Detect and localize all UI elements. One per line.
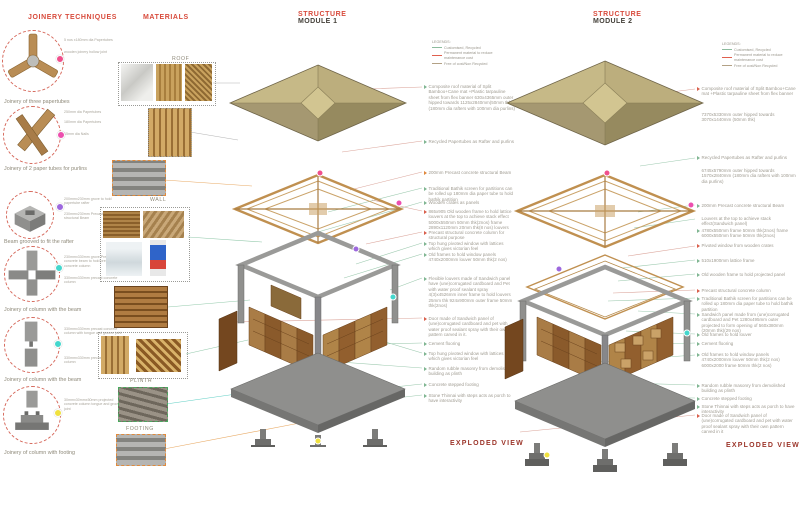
materials-title: MATERIALS: [143, 14, 189, 21]
annotation: Concrete stepped footing: [697, 396, 797, 401]
annotation-marker: [697, 273, 700, 277]
joinery-detail-column-tongue: [4, 317, 60, 373]
annotation-text: Composite roof material of Split Bamboo+…: [702, 86, 798, 97]
joinery-detail-column-beam: [4, 246, 60, 302]
annotation-text: Traditional Bathik screen for partitions…: [702, 296, 798, 312]
legend-entry: Customised, Recycled: [444, 46, 481, 51]
material-swatch-rubble-masonry: [118, 387, 168, 422]
joinery-note: 200mmx230mm grove to hold papertube raft…: [64, 197, 124, 206]
module2-structure-label: STRUCTURE: [593, 11, 642, 18]
module2-header: STRUCTURE MODULE 2: [593, 11, 642, 25]
joinery-note: 250mm dia Papertubes: [64, 110, 124, 114]
two-papertubes-joint-icon: [4, 107, 60, 163]
legend-title: LEGENDS:: [432, 40, 510, 45]
annotation-marker: [424, 342, 427, 346]
legend-entry: Customised, Recycled: [734, 48, 771, 53]
annotation-text: Sandwich panel made from (une)corrugated…: [702, 312, 798, 334]
legend-title: LEGENDS:: [722, 42, 798, 47]
joinery-label: Joinery of column with footing: [4, 450, 129, 456]
annotation-text: Old frames to hold louver: [702, 332, 752, 337]
three-papertubes-joint-icon: [3, 31, 63, 91]
column-tongue-groove-icon: [5, 318, 59, 372]
joinery-detail-column-footing: [3, 386, 61, 444]
legend-entry: Free of cost/Non Recycled: [734, 64, 777, 69]
annotation: Random rubble masonry from demolished bu…: [697, 383, 797, 394]
annotation-marker: [697, 87, 700, 91]
column-footing-joint-icon: [4, 387, 60, 443]
annotation-marker: [424, 277, 427, 281]
joint-dot-teal: [55, 264, 63, 272]
joint-dot-magenta: [57, 131, 65, 139]
annotation-marker: [424, 231, 427, 235]
annotation-marker: [697, 384, 700, 388]
module2-exploded-view-label: EXPLODED VIEW: [726, 442, 800, 449]
joinery-note: 15mm dia Nails: [64, 132, 124, 136]
annotation: Old wooden frame to hold projected panel: [697, 272, 797, 277]
legend-line-red: [432, 55, 442, 56]
annotation: Old frames to hold window panels 4740x20…: [697, 352, 797, 368]
joint-dot-teal: [54, 340, 62, 348]
annotation-marker: [424, 367, 427, 371]
annotation: 200mm Precast concrete structural Beam: [697, 203, 797, 208]
legend-line-green: [432, 47, 442, 48]
annotation-text: Louvers at the top to achieve stack effe…: [702, 216, 798, 227]
annotation-marker: [697, 289, 700, 293]
annotation-marker: [697, 397, 700, 401]
module2-exploded-view-drawing: [497, 55, 712, 475]
material-swatch-wooden-crates: [114, 286, 168, 328]
material-swatch-woven-mat: [103, 211, 140, 238]
annotation-marker: [697, 353, 700, 357]
material-swatch-split-bamboo: [156, 64, 182, 101]
legend-entry: Permanent material to reduce maintenance…: [734, 53, 798, 62]
architecture-sheet: JOINERY TECHNIQUES 5 nos x180mm dia Pape…: [0, 0, 800, 520]
module2-name: MODULE 2: [593, 18, 642, 25]
annotation-marker: [424, 317, 427, 321]
joinery-label: Joinery of column with the beam: [4, 307, 129, 313]
annotation: Composite roof material of Split Bamboo+…: [697, 86, 797, 97]
material-swatch-tarpaulin-roll: [121, 64, 153, 101]
annotation-marker: [424, 210, 427, 214]
material-swatch-batik-fabric: [136, 339, 181, 372]
annotation-marker: [424, 140, 427, 144]
annotation: 4780x550mm frame 50mm thk(2nos) frame 60…: [697, 228, 797, 239]
material-swatch-precast-footing: [116, 434, 166, 466]
module1-name: MODULE 1: [298, 18, 347, 25]
material-swatch-sealant-spray: [150, 240, 166, 276]
annotation-marker: [697, 217, 700, 221]
annotation-marker: [697, 342, 700, 346]
annotation-marker: [697, 414, 700, 418]
joinery-note: wooden joinery hollow joint: [64, 50, 124, 54]
material-swatch-papertube-bundle: [101, 336, 129, 374]
legend-line-green: [722, 49, 732, 50]
annotation-marker: [424, 171, 427, 175]
material-swatch-corrugated-cardboard: [143, 211, 184, 238]
joinery-detail-two-papertubes: [3, 106, 61, 164]
annotation-marker: [697, 156, 700, 160]
annotation-marker: [697, 333, 700, 337]
annotation-marker: [424, 253, 427, 257]
legend-line-tan: [432, 63, 442, 64]
annotation-text: 200mm Precast concrete structural Beam: [702, 203, 785, 208]
annotation: 510x1900mm lattice frame: [697, 258, 797, 263]
annotation-text: 6745x5790mm outer hipped towards 1570x28…: [702, 168, 798, 184]
annotation-text: Concrete stepped footing: [429, 382, 479, 387]
annotation: Louvers at the top to achieve stack effe…: [697, 216, 797, 227]
annotation-marker: [697, 297, 700, 301]
joinery-note: 5 nos x180mm dia Papertubes: [64, 38, 124, 42]
material-swatch-cane-mat: [185, 64, 212, 101]
joint-dot-purple: [56, 203, 64, 211]
annotation: 6745x5790mm outer hipped towards 1570x28…: [697, 168, 797, 184]
material-swatch-pet-bottles: [106, 242, 142, 276]
annotation-text: Door made of Sandwich panel of (une)corr…: [702, 413, 798, 435]
module1-exploded-view-drawing: [213, 57, 413, 447]
joint-dot-pink: [56, 55, 64, 63]
material-swatch-precast-beams: [112, 160, 166, 196]
annotation-marker: [424, 352, 427, 356]
annotation: Old frames to hold louver: [697, 332, 797, 337]
annotation-text: 7370x5330mm outer hipped towards 3070x14…: [702, 112, 798, 123]
annotation: Cement flooring: [697, 341, 797, 346]
annotation-marker: [424, 383, 427, 387]
annotation-marker: [424, 242, 427, 246]
module2-floor-slab: [515, 363, 695, 447]
annotation-marker: [697, 405, 700, 409]
legend-module2: LEGENDS: Customised, Recycled Permanent …: [722, 42, 798, 69]
annotation: Pivoted window from wooden crates: [697, 243, 797, 248]
annotation-text: Precast structural concrete column: [702, 288, 771, 293]
materials-wall-label: WALL: [150, 197, 166, 203]
annotation: Traditional Bathik screen for partitions…: [697, 296, 797, 312]
module2-rafter-frame: [517, 175, 693, 247]
legend-entry: Free of cost/Non Recycled: [444, 62, 487, 67]
grooved-beam-icon: [7, 192, 53, 238]
annotation-marker: [697, 204, 700, 208]
joinery-note: 30mmx30mmx50mm projected concrete column…: [64, 398, 124, 411]
annotation-marker: [697, 244, 700, 248]
module2-roof: [507, 61, 703, 145]
annotation-text: Cement flooring: [702, 341, 734, 346]
annotation-marker: [697, 169, 700, 173]
annotation-text: Random rubble masonry from demolished bu…: [702, 383, 798, 394]
module1-structure-label: STRUCTURE: [298, 11, 347, 18]
annotation-text: Old wooden frame to hold projected panel: [702, 272, 786, 277]
material-swatch-papertubes: [148, 108, 192, 157]
module1-roof: [230, 65, 406, 141]
module1-floor-slab: [231, 353, 405, 433]
module1-drawing-svg: [213, 57, 413, 447]
legend-line-tan: [722, 65, 732, 66]
annotation-marker: [697, 113, 700, 117]
annotation: Sandwich panel made from (une)corrugated…: [697, 312, 797, 334]
annotation: Recycled Papertubes as Rafter and purlin…: [697, 155, 797, 160]
annotation-marker: [424, 85, 427, 89]
annotation: Door made of Sandwich panel of (une)corr…: [697, 413, 797, 435]
annotation-marker: [697, 229, 700, 233]
joinery-detail-beam-rafter: [6, 191, 54, 239]
annotation-marker: [697, 313, 700, 317]
annotation-marker: [424, 187, 427, 191]
annotation-text: 510x1900mm lattice frame: [702, 258, 755, 263]
legend-line-red: [722, 57, 732, 58]
annotation-text: Old frames to hold window panels 4740x20…: [702, 352, 798, 368]
annotation-text: Cement flooring: [429, 341, 461, 346]
materials-plinth-label: PLINTH: [130, 378, 152, 384]
module2-drawing-svg: [497, 55, 712, 475]
annotation-text: Pivoted window from wooden crates: [702, 243, 774, 248]
joinery-detail-three-papertubes: [2, 30, 64, 92]
annotation-text: Concrete stepped footing: [702, 396, 752, 401]
column-beam-joint-icon: [5, 247, 59, 301]
annotation: 7370x5330mm outer hipped towards 3070x14…: [697, 112, 797, 123]
annotation-marker: [424, 394, 427, 398]
joinery-label: Joinery of 2 paper tubes for purlins: [4, 166, 129, 172]
materials-footing-label: FOOTING: [126, 426, 154, 432]
joinery-label: Joinery of three papertubes: [4, 99, 129, 105]
annotation-text: 4780x550mm frame 50mm thk(2nos) frame 60…: [702, 228, 798, 239]
joinery-title: JOINERY TECHNIQUES: [28, 14, 117, 21]
joinery-note: 180mm dia Papertubes: [64, 120, 124, 124]
annotation-text: Wooden crates as panels: [429, 200, 480, 205]
annotation-marker: [424, 201, 427, 205]
module1-header: STRUCTURE MODULE 1: [298, 11, 347, 25]
annotation: Precast structural concrete column: [697, 288, 797, 293]
annotation-text: Recycled Papertubes as Rafter and purlin…: [702, 155, 788, 160]
joint-dot-yellow: [54, 409, 62, 417]
annotation-marker: [697, 259, 700, 263]
